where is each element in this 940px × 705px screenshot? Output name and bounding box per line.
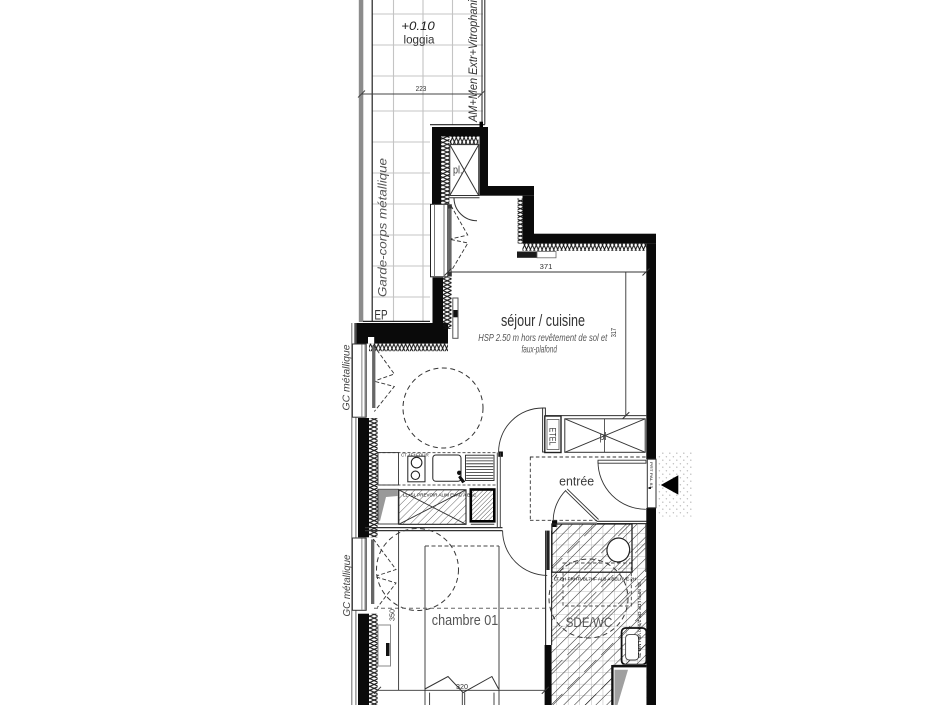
- svg-text:223: 223: [416, 84, 427, 93]
- svg-text:HSP 2.50 m hors revêtement de: HSP 2.50 m hors revêtement de sol et: [478, 332, 608, 344]
- svg-text:entrée: entrée: [559, 475, 594, 489]
- svg-text:317: 317: [609, 328, 618, 337]
- svg-text:350: 350: [388, 609, 397, 621]
- svg-text:371: 371: [540, 262, 553, 271]
- svg-text:SL MFN LDF OF 2/500 VB LMH 25: SL MFN LDF OF 2/500 VB LMH 25: [637, 582, 642, 659]
- svg-text:séjour / cuisine: séjour / cuisine: [501, 312, 585, 330]
- svg-text:SDE/WC: SDE/WC: [566, 614, 613, 630]
- svg-text:Garde-corps métallique: Garde-corps métallique: [378, 158, 390, 297]
- svg-text:pl: pl: [600, 431, 607, 443]
- svg-text:LL+SL PREVOIR ALIM EVAC A BAC: LL+SL PREVOIR ALIM EVAC A BAC: [403, 493, 477, 498]
- svg-text:AM+Men Extr+Vitrophanie: AM+Men Extr+Vitrophanie: [468, 0, 480, 123]
- svg-text:GC métallique: GC métallique: [341, 344, 353, 410]
- svg-text:chambre 01: chambre 01: [432, 613, 498, 629]
- svg-text:+0.10: +0.10: [401, 19, 435, 33]
- svg-text:CT 4F+FOUR: CT 4F+FOUR: [401, 453, 430, 458]
- svg-text:loggia: loggia: [404, 33, 435, 47]
- svg-text:GC métallique: GC métallique: [341, 554, 353, 616]
- svg-text:PRT PAL 83: PRT PAL 83: [649, 462, 654, 489]
- svg-text:EP: EP: [374, 307, 387, 323]
- svg-text:ETEL: ETEL: [548, 428, 558, 446]
- svg-text:LT EH PRHTVBL7HF ALB A BELHVE: LT EH PRHTVBL7HF ALB A BELHVE 2H: [554, 577, 636, 582]
- svg-text:320: 320: [456, 682, 468, 691]
- svg-text:pl.: pl.: [453, 164, 463, 176]
- svg-text:faux-plafond: faux-plafond: [522, 344, 558, 356]
